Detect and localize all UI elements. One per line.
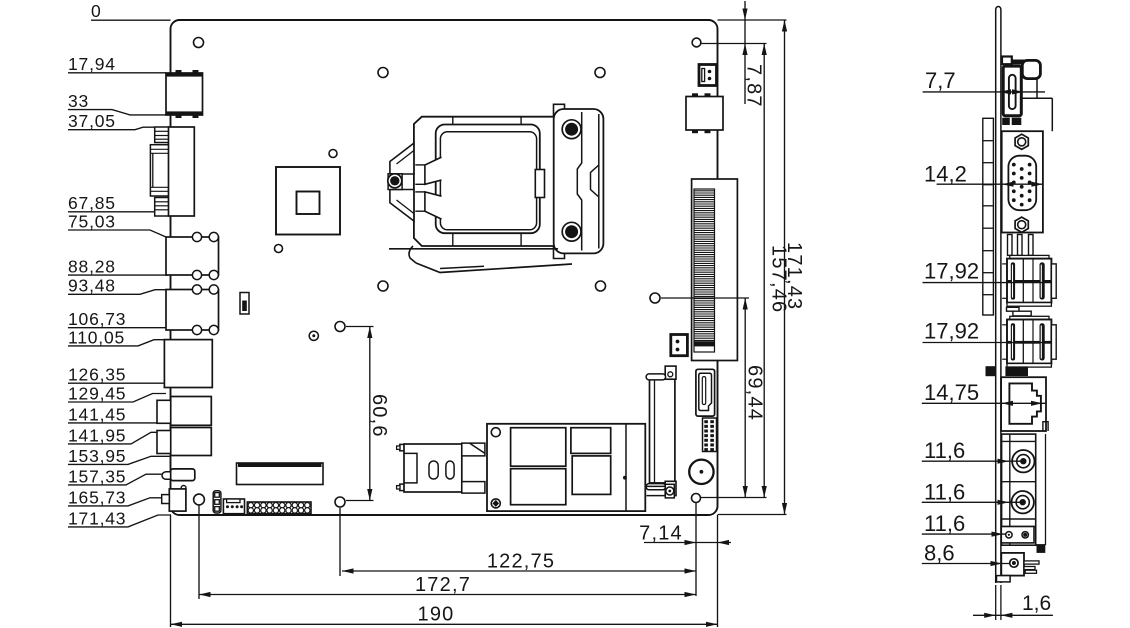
svg-text:11,6: 11,6	[924, 480, 965, 505]
svg-text:17,92: 17,92	[924, 319, 979, 344]
svg-text:17,94: 17,94	[68, 54, 116, 74]
svg-text:0: 0	[91, 1, 102, 21]
svg-text:93,48: 93,48	[68, 276, 116, 296]
svg-text:165,73: 165,73	[68, 487, 126, 507]
svg-text:153,95: 153,95	[68, 446, 126, 466]
svg-text:172,7: 172,7	[415, 574, 471, 596]
svg-text:67,85: 67,85	[68, 193, 116, 213]
svg-text:17,92: 17,92	[924, 259, 979, 284]
svg-text:1,6: 1,6	[1022, 592, 1051, 615]
svg-text:8,6: 8,6	[924, 541, 955, 566]
svg-text:126,35: 126,35	[68, 365, 126, 385]
svg-text:157,46: 157,46	[768, 245, 790, 313]
svg-text:7,14: 7,14	[639, 523, 683, 545]
svg-text:141,45: 141,45	[68, 404, 126, 424]
svg-text:75,03: 75,03	[68, 212, 116, 232]
svg-text:171,43: 171,43	[68, 508, 126, 528]
svg-text:110,05: 110,05	[68, 327, 125, 347]
svg-text:14,75: 14,75	[924, 380, 979, 405]
svg-text:11,6: 11,6	[924, 438, 965, 463]
svg-text:33: 33	[68, 91, 89, 111]
svg-text:69,44: 69,44	[744, 365, 766, 421]
svg-text:14,2: 14,2	[924, 162, 967, 187]
svg-text:157,35: 157,35	[68, 466, 126, 486]
svg-text:7,87: 7,87	[743, 64, 765, 108]
svg-text:190: 190	[418, 603, 455, 625]
svg-text:60,6: 60,6	[368, 394, 390, 438]
svg-text:141,95: 141,95	[68, 425, 126, 445]
svg-text:106,73: 106,73	[68, 309, 126, 329]
svg-text:7,7: 7,7	[925, 68, 956, 93]
svg-text:37,05: 37,05	[68, 111, 116, 131]
svg-text:88,28: 88,28	[68, 257, 116, 277]
svg-text:11,6: 11,6	[924, 511, 965, 536]
svg-text:122,75: 122,75	[487, 551, 555, 573]
svg-text:129,45: 129,45	[68, 384, 126, 404]
